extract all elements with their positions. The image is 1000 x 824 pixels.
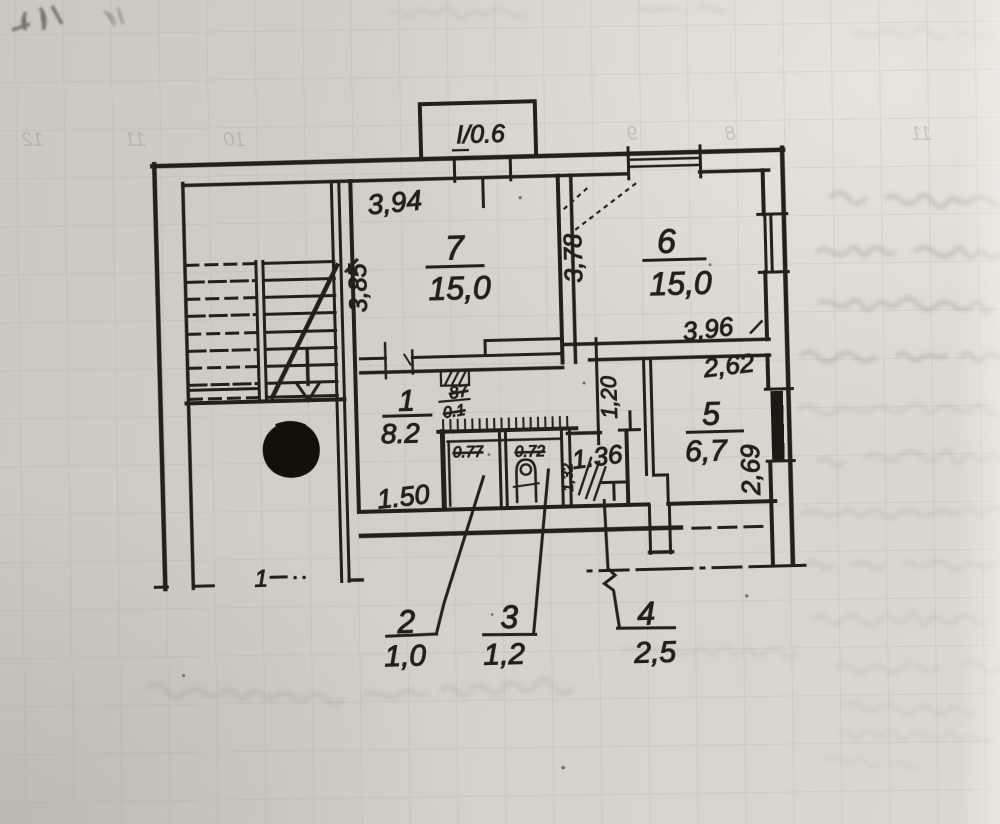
svg-text:12: 12 xyxy=(22,129,44,151)
svg-text:1.50: 1.50 xyxy=(375,479,431,515)
svg-text:1,20: 1,20 xyxy=(596,375,622,419)
svg-text:1: 1 xyxy=(398,384,416,417)
svg-text:I/0.6: I/0.6 xyxy=(456,120,505,149)
svg-text:3,96: 3,96 xyxy=(681,311,735,347)
svg-text:4: 4 xyxy=(637,595,656,631)
svg-text:10: 10 xyxy=(224,129,246,151)
svg-text:3,85: 3,85 xyxy=(344,263,373,312)
svg-text:11: 11 xyxy=(911,123,932,145)
svg-text:2,69: 2,69 xyxy=(735,444,766,496)
svg-text:2,5: 2,5 xyxy=(633,636,677,670)
svg-text:1.36: 1.36 xyxy=(570,439,625,475)
svg-text:1: 1 xyxy=(254,565,268,592)
svg-text:15,0: 15,0 xyxy=(428,269,491,307)
svg-text:3,78: 3,78 xyxy=(559,233,588,282)
svg-text:3: 3 xyxy=(500,599,519,635)
svg-text:6: 6 xyxy=(656,223,676,261)
svg-text:8.2: 8.2 xyxy=(381,417,421,449)
svg-text:15,0: 15,0 xyxy=(649,265,712,303)
svg-text:8: 8 xyxy=(725,123,736,145)
svg-text:6,7: 6,7 xyxy=(685,434,729,468)
svg-text:3,94: 3,94 xyxy=(366,184,423,220)
svg-text:1,0: 1,0 xyxy=(384,639,427,673)
svg-text:11: 11 xyxy=(125,129,146,151)
svg-text:0.77: 0.77 xyxy=(453,444,485,462)
svg-text:9: 9 xyxy=(627,123,638,145)
svg-text:0.72: 0.72 xyxy=(515,443,546,461)
svg-text:2,62: 2,62 xyxy=(701,347,756,383)
svg-text:7: 7 xyxy=(445,229,466,268)
svg-text:5: 5 xyxy=(702,395,721,431)
svg-text:1,2: 1,2 xyxy=(483,638,526,672)
svg-text:0.1: 0.1 xyxy=(442,402,467,422)
